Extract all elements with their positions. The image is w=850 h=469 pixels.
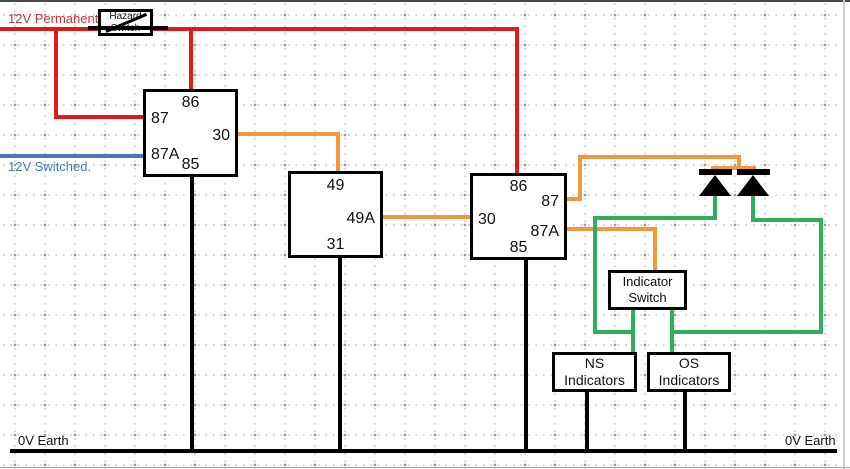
wire-relay1-85-earth[interactable] xyxy=(190,175,194,452)
wire-ns-earth[interactable] xyxy=(585,390,589,452)
wire-12v-switched[interactable] xyxy=(0,154,146,158)
wire-os-riser[interactable] xyxy=(819,218,823,334)
right-diode-icon[interactable] xyxy=(737,175,769,196)
os-indicators-label-line2: Indicators xyxy=(659,372,720,389)
label-12v-permanent[interactable]: 12V Permanent xyxy=(8,11,98,26)
wire-relay1-30-to-flasher[interactable] xyxy=(238,132,340,136)
wire-red-drop-relay1-86[interactable] xyxy=(189,27,193,93)
ns-indicators[interactable]: NS Indicators xyxy=(552,352,637,392)
wire-red-drop-relay1-87[interactable] xyxy=(54,27,58,118)
left-diode-icon[interactable] xyxy=(699,175,731,196)
wire-12v-permanent-rail[interactable] xyxy=(0,27,519,31)
indicator-switch[interactable]: Indicator Switch xyxy=(608,270,687,310)
wire-relay2-87-run-to-diodes[interactable] xyxy=(578,155,741,159)
wire-flasher-49a-to-relay2-30[interactable] xyxy=(383,215,473,219)
wire-relay2-87-riser[interactable] xyxy=(578,155,582,201)
ns-indicators-label-line2: Indicators xyxy=(564,372,625,389)
ns-indicators-label-line1: NS xyxy=(585,355,604,372)
canvas-bottom-edge xyxy=(0,467,850,468)
label-0v-earth-right[interactable]: 0V Earth xyxy=(785,433,836,448)
relay2[interactable]: 86 87 30 87A 85 xyxy=(470,173,567,260)
wire-red-drop-relay2-86[interactable] xyxy=(515,27,519,177)
wire-relay2-87a-run[interactable] xyxy=(567,227,657,231)
wire-red-run-relay1-87[interactable] xyxy=(54,115,146,119)
relay1-pin-87: 87 xyxy=(151,110,169,128)
relay1-pin-85: 85 xyxy=(146,156,235,174)
wire-os-run-upper[interactable] xyxy=(751,218,823,222)
flasher-pin-49: 49 xyxy=(291,177,380,195)
wire-hazard-switch-feed[interactable] xyxy=(88,26,168,30)
wire-ns-run-upper[interactable] xyxy=(593,216,717,220)
indicator-switch-label-line2: Switch xyxy=(628,290,666,306)
wire-ns-riser[interactable] xyxy=(593,216,597,334)
wire-drop-flasher-49[interactable] xyxy=(336,132,340,174)
wire-os-earth[interactable] xyxy=(683,390,687,452)
canvas-right-edge xyxy=(843,0,845,469)
flasher-pin-49a: 49A xyxy=(347,210,375,228)
label-0v-earth-left[interactable]: 0V Earth xyxy=(18,433,69,448)
relay2-pin-85: 85 xyxy=(473,239,564,257)
wire-flasher-31-earth[interactable] xyxy=(338,256,342,452)
relay2-pin-30: 30 xyxy=(478,211,496,229)
wire-relay2-85-earth[interactable] xyxy=(524,258,528,452)
indicator-switch-label-line1: Indicator xyxy=(623,274,673,290)
wire-ns-run-lower[interactable] xyxy=(593,330,635,334)
flasher-unit[interactable]: 49 49A 31 xyxy=(288,171,383,258)
wire-drop-indicator-switch[interactable] xyxy=(653,227,657,273)
wiring-diagram-canvas: Hazard Switch 86 87 30 87A 85 49 49A 31 xyxy=(0,0,850,469)
canvas-top-edge xyxy=(0,0,850,2)
relay1-pin-30: 30 xyxy=(212,127,230,145)
label-12v-switched[interactable]: 12V Switched. xyxy=(8,159,91,174)
relay2-pin-87: 87 xyxy=(541,193,559,211)
relay1[interactable]: 86 87 30 87A 85 xyxy=(143,89,238,177)
os-indicators[interactable]: OS Indicators xyxy=(647,352,731,392)
os-indicators-label-line1: OS xyxy=(679,355,699,372)
wire-switch-to-ns[interactable] xyxy=(631,310,635,355)
wire-switch-to-os[interactable] xyxy=(670,310,674,355)
wire-os-run-lower[interactable] xyxy=(671,330,823,334)
wire-earth-rail[interactable] xyxy=(10,449,837,453)
flasher-pin-31: 31 xyxy=(291,236,380,254)
